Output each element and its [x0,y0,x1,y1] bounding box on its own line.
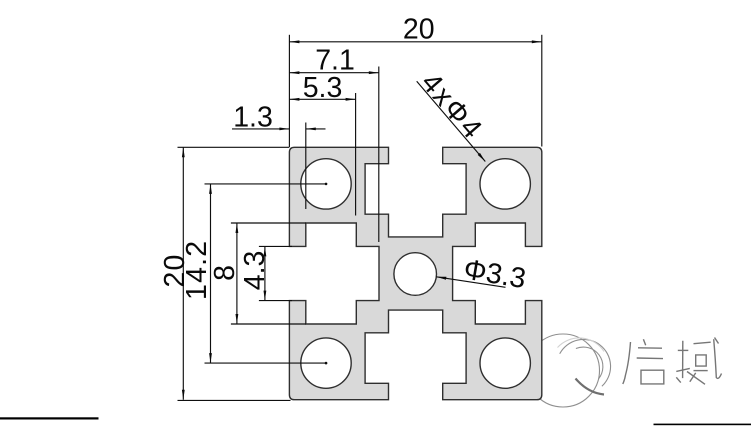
svg-text:14.2: 14.2 [181,240,213,300]
svg-text:5.3: 5.3 [303,72,343,104]
svg-text:4xΦ4: 4xΦ4 [415,67,490,147]
svg-text:8: 8 [209,265,241,281]
svg-text:Φ3.3: Φ3.3 [461,253,528,295]
svg-text:1.3: 1.3 [233,101,273,133]
svg-text:20: 20 [403,13,435,45]
svg-text:4.3: 4.3 [239,251,271,291]
